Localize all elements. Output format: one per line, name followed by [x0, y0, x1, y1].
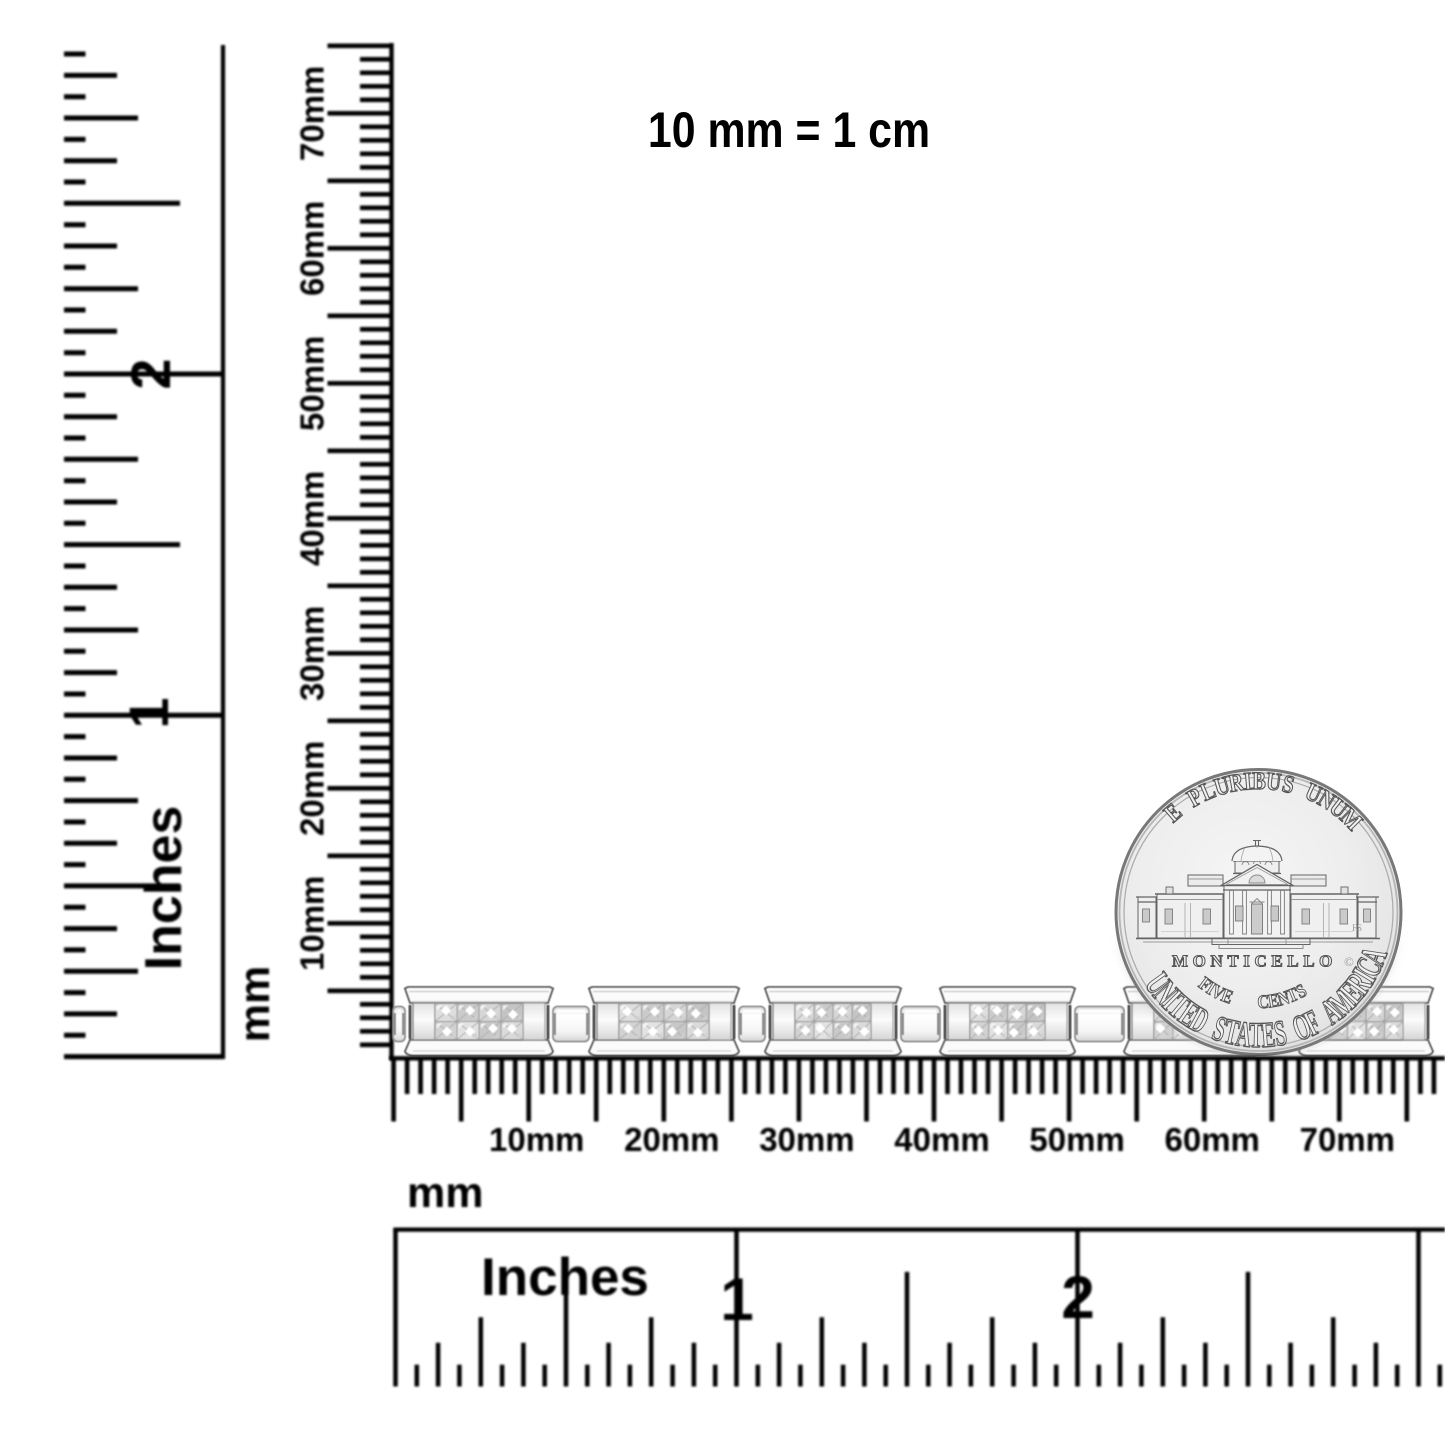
svg-text:©: © — [1344, 954, 1354, 969]
svg-text:Inches: Inches — [481, 1248, 649, 1307]
svg-text:20mm: 20mm — [624, 1121, 719, 1158]
svg-text:10mm: 10mm — [294, 876, 331, 971]
svg-text:50mm: 50mm — [294, 336, 331, 431]
svg-text:50mm: 50mm — [1029, 1121, 1124, 1158]
svg-text:FS: FS — [1352, 923, 1362, 933]
svg-text:10mm: 10mm — [489, 1121, 584, 1158]
svg-text:70mm: 70mm — [1300, 1121, 1395, 1158]
svg-text:1: 1 — [117, 697, 180, 728]
svg-text:mm: mm — [407, 1169, 483, 1217]
svg-text:40mm: 40mm — [894, 1121, 989, 1158]
svg-text:70mm: 70mm — [294, 66, 331, 161]
svg-text:MONTICELLO: MONTICELLO — [1172, 952, 1337, 971]
svg-text:mm: mm — [231, 966, 279, 1042]
svg-text:2: 2 — [1061, 1264, 1094, 1331]
svg-text:60mm: 60mm — [294, 201, 331, 296]
svg-text:30mm: 30mm — [759, 1121, 854, 1158]
svg-text:Inches: Inches — [135, 806, 193, 971]
svg-text:10 mm = 1 cm: 10 mm = 1 cm — [648, 102, 930, 158]
svg-text:30mm: 30mm — [294, 606, 331, 701]
svg-text:2: 2 — [119, 358, 182, 389]
svg-text:B: B — [1252, 767, 1266, 794]
svg-text:40mm: 40mm — [294, 471, 331, 566]
svg-text:1: 1 — [720, 1266, 753, 1333]
svg-text:20mm: 20mm — [294, 741, 331, 836]
svg-text:60mm: 60mm — [1165, 1121, 1260, 1158]
